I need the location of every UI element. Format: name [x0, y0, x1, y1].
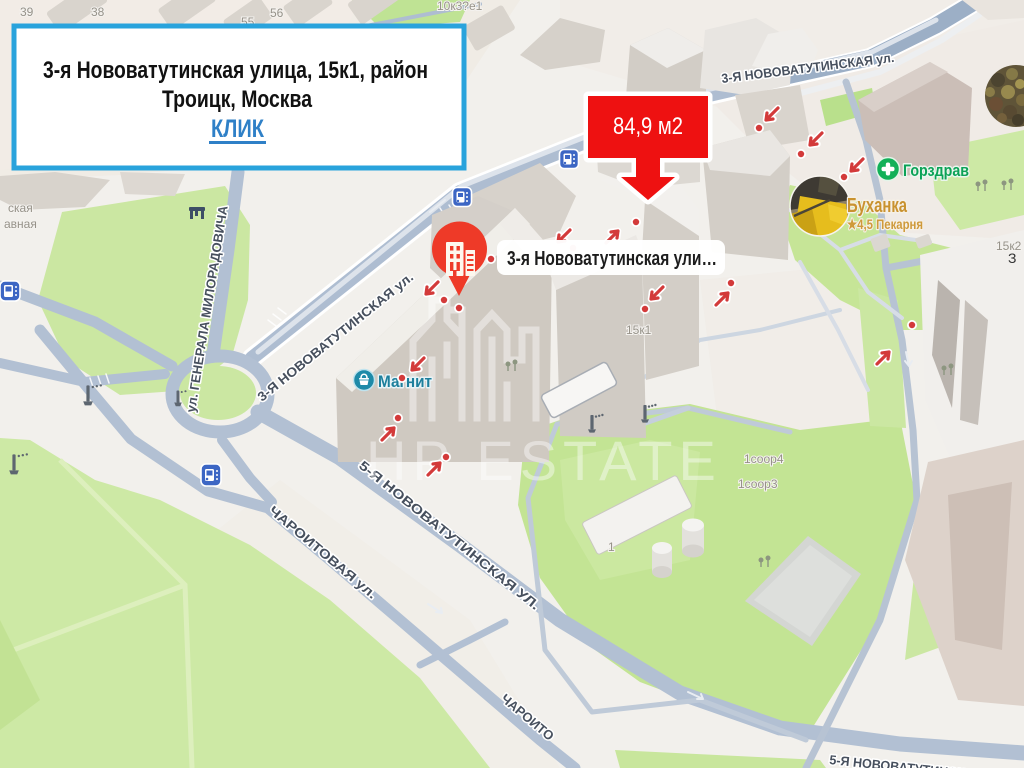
svg-text:★4,5 Пекарня: ★4,5 Пекарня [847, 216, 923, 232]
svg-text:84,9 м2: 84,9 м2 [613, 113, 683, 140]
svg-text:З: З [1008, 250, 1016, 266]
svg-text:Троицк, Москва: Троицк, Москва [162, 86, 313, 113]
svg-text:15к1: 15к1 [626, 323, 652, 337]
svg-text:38: 38 [91, 5, 105, 19]
svg-text:ская: ская [8, 201, 33, 215]
svg-text:1: 1 [608, 540, 615, 554]
svg-text:HP ESTATE: HP ESTATE [366, 429, 722, 492]
svg-text:10к3?е1: 10к3?е1 [437, 0, 483, 13]
svg-text:56: 56 [270, 6, 284, 20]
svg-text:КЛИК: КЛИК [211, 115, 265, 143]
svg-text:Горздрав: Горздрав [903, 161, 969, 180]
svg-text:Буханка: Буханка [847, 195, 908, 217]
svg-text:авная: авная [4, 217, 37, 231]
svg-text:3-я Нововатутинская улица, 15к: 3-я Нововатутинская улица, 15к1, район [43, 57, 428, 84]
svg-text:39: 39 [20, 5, 34, 19]
svg-text:3-я Нововатутинская ули…: 3-я Нововатутинская ули… [507, 248, 717, 270]
svg-text:1соор4: 1соор4 [744, 452, 784, 466]
svg-text:1соор3: 1соор3 [738, 477, 778, 491]
